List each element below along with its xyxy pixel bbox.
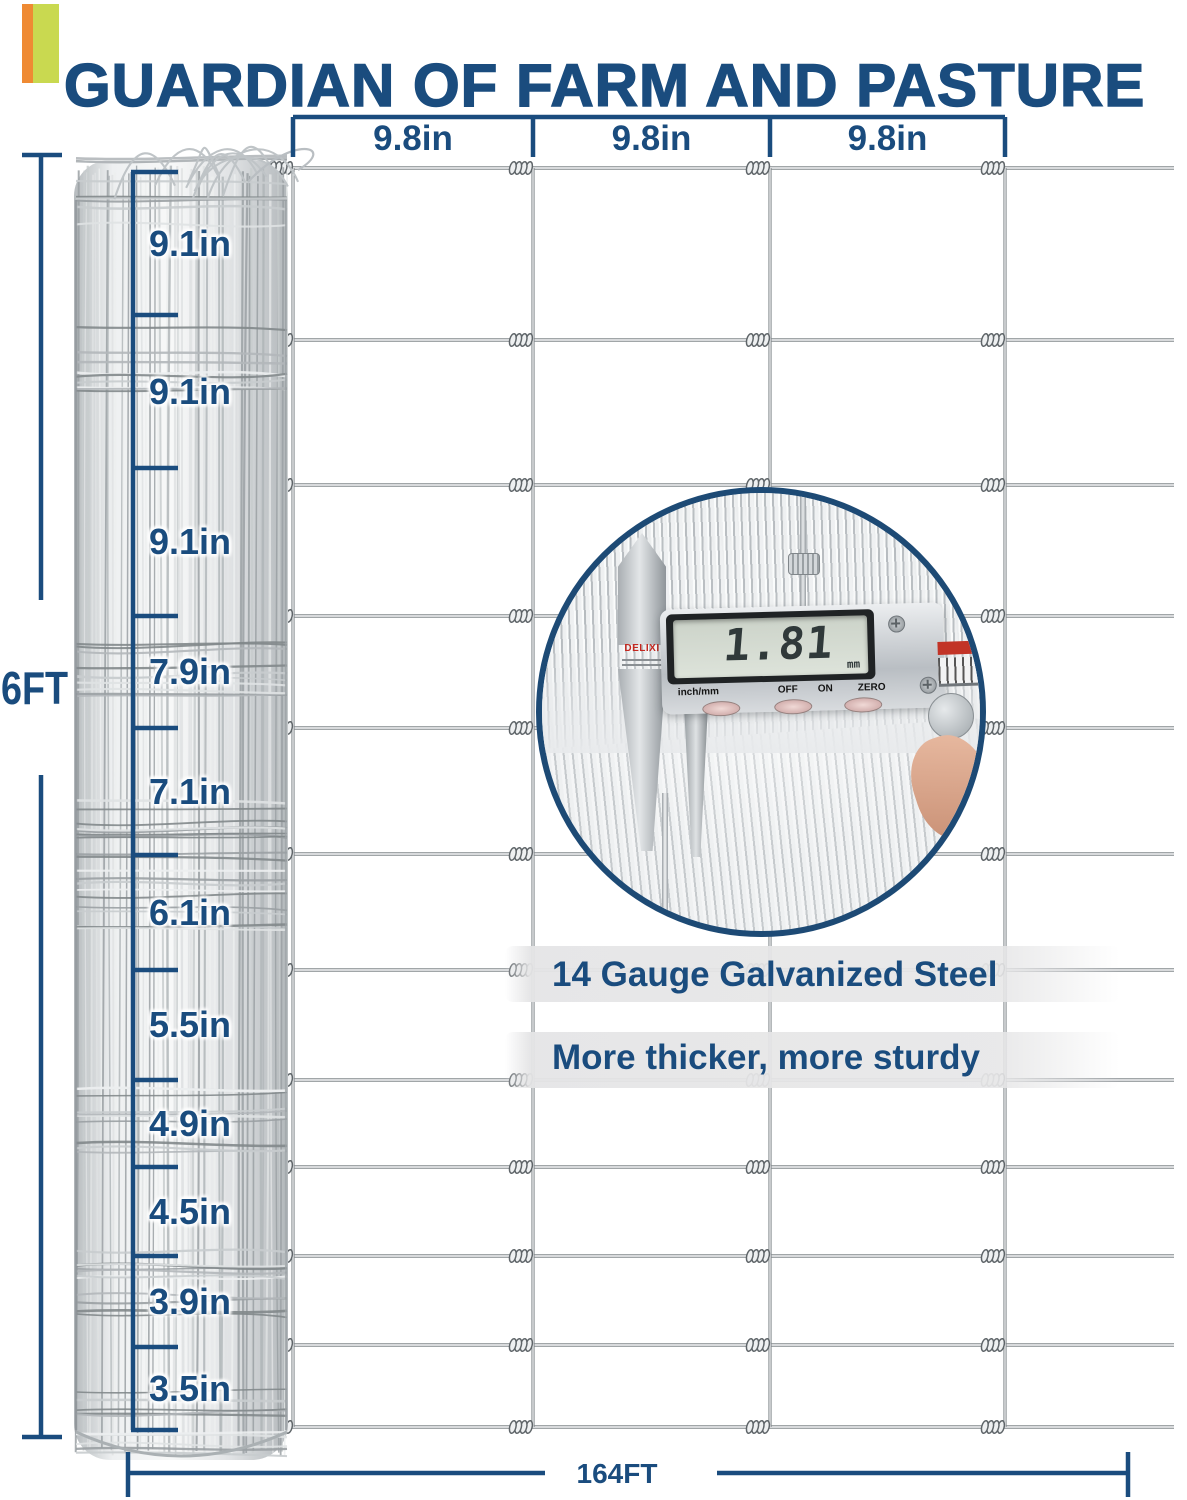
left-dimension-label: 4.9in [149,1103,231,1145]
caliper-depth-screw [788,553,820,575]
caliper-microtext [622,657,662,666]
top-dimension-label: 9.8in [848,119,928,159]
caliper-display-value: 1.81 [722,618,836,672]
product-infographic: GUARDIAN OF FARM AND PASTURE 6FT 164FT 1… [0,0,1187,1500]
caliper-body: 1.81 mm inch/mm OFF ON ZERO [660,602,946,714]
left-dimension-label: 9.1in [149,371,231,413]
caliper-beam [936,612,986,706]
caliper-jaw-lower [618,669,666,851]
left-dimension-label: 7.9in [149,651,231,693]
caliper-button-label: ZERO [858,682,886,694]
screw-icon [920,676,937,693]
left-dimension-label: 9.1in [149,223,231,265]
left-dimension-label: 6.1in [149,892,231,934]
left-dimension-label: 3.5in [149,1368,231,1410]
caliper-button-label: ON [818,683,833,694]
measured-wire [662,793,668,933]
roller-wheel [928,693,974,739]
caliper-beam-red-stripe [937,640,986,655]
caliper-display-unit: mm [847,657,861,670]
left-dimension-label: 3.9in [149,1281,231,1323]
length-dimension-label: 164FT [577,1458,658,1490]
left-dimension-label: 4.5in [149,1191,231,1233]
caliper-jaw-moving [684,705,708,857]
left-dimension-label: 7.1in [149,771,231,813]
feature-text-sturdy: More thicker, more sturdy [552,1038,980,1078]
caliper-screen: 1.81 mm [673,615,868,678]
feature-text-gauge: 14 Gauge Galvanized Steel [552,955,997,995]
height-dimension-label: 6FT [1,661,68,715]
screw-icon [888,615,905,632]
left-dimension-label: 9.1in [149,521,231,563]
caliper-button-label: inch/mm [678,686,719,698]
caliper-brand: DELIXI [618,643,666,654]
caliper-inset: DELIXI 1.81 mm inch/mm OFF ON ZERO [536,487,986,937]
top-dimension-label: 9.8in [612,119,692,159]
caliper-beam-ruler [938,656,986,687]
caliper-button-label: OFF [778,684,798,696]
top-dimension-label: 9.8in [373,119,453,159]
left-dimension-label: 5.5in [149,1004,231,1046]
caliper-depth-rod [800,493,806,609]
caliper-display: 1.81 mm [666,609,876,684]
